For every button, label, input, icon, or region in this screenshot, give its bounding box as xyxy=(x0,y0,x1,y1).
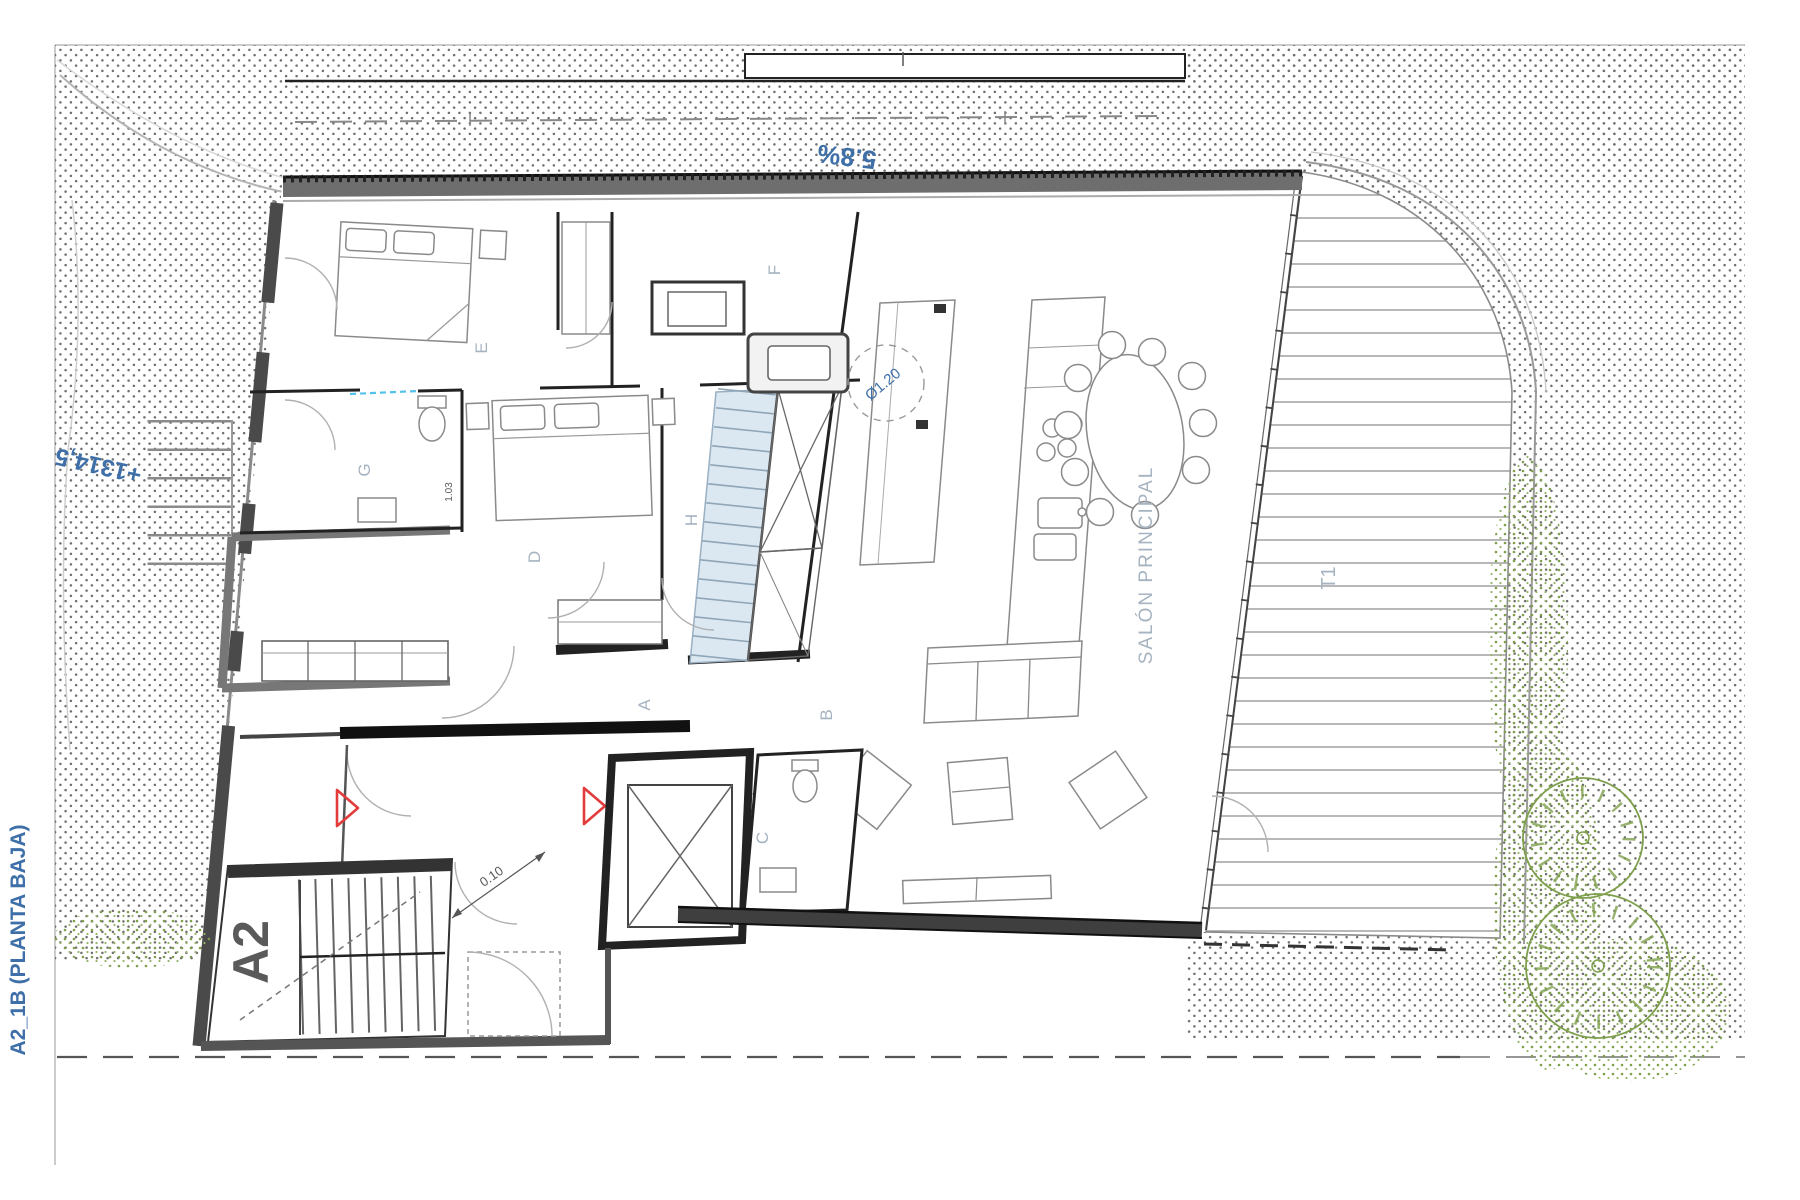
room-label-e: E xyxy=(472,342,491,353)
terrace-label: T1 xyxy=(1318,566,1340,589)
floor-plan-sheet: 5.8% +1314,5 A2_1B (PLANTA BAJA) A2 SALÓ… xyxy=(0,0,1800,1200)
room-label-b: B xyxy=(817,709,836,720)
room-label-c: C xyxy=(753,832,772,844)
room-label-d: D xyxy=(525,551,544,563)
room-label-g: G xyxy=(355,463,374,476)
room-label-h: H xyxy=(682,514,701,526)
floor-plan-drawing: 5.8% +1314,5 A2_1B (PLANTA BAJA) A2 SALÓ… xyxy=(0,0,1800,1200)
bedroom-d-furniture xyxy=(466,394,678,521)
room-label-f: F xyxy=(765,265,784,275)
room-label-a: A xyxy=(635,699,654,711)
core-label: A2 xyxy=(223,920,279,984)
salon-label: SALÓN PRINCIPAL xyxy=(1135,466,1157,665)
dim-small-label: 1.03 xyxy=(444,482,455,502)
sheet-title: A2_1B (PLANTA BAJA) xyxy=(7,824,30,1055)
bathroom-c xyxy=(744,750,862,913)
